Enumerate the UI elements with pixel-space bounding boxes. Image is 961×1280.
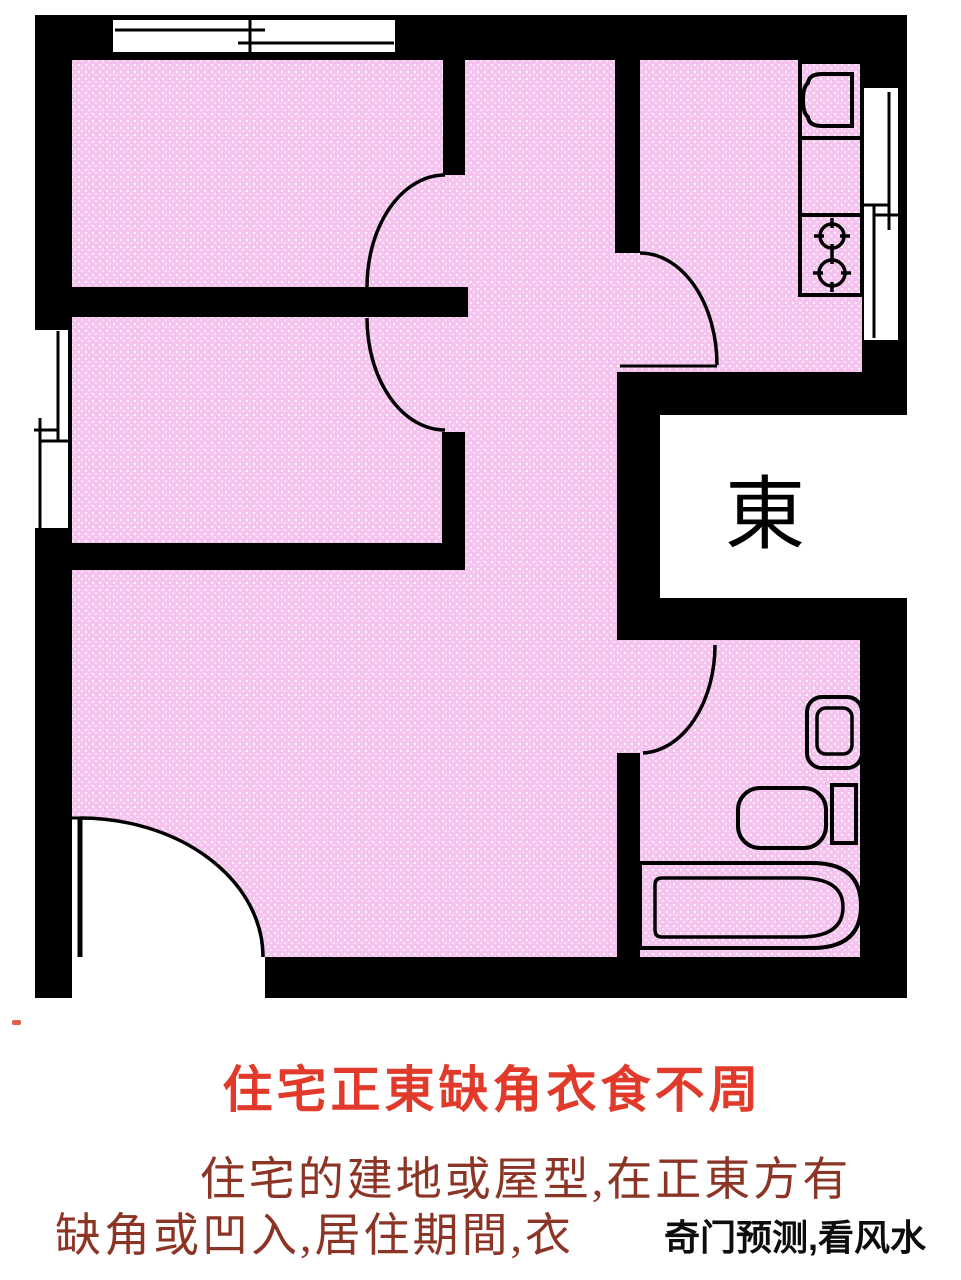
wall-bedroom2-south (60, 543, 463, 570)
red-speck-artifact (12, 1020, 21, 1025)
floor-plan-page: 東 (0, 0, 961, 1280)
wall-bedroom-divider (60, 287, 468, 317)
floor-bathroom (640, 640, 862, 957)
east-direction-label: 東 (725, 472, 805, 560)
window-icon-top (113, 20, 395, 52)
wall-corridor-stub-top (443, 57, 465, 175)
caption-title: 住宅正東缺角衣食不周 (12, 1050, 961, 1122)
floor-plan-diagram: 東 (0, 0, 961, 1010)
wall-kitchen-south (617, 372, 907, 415)
wall-right-lower (860, 598, 907, 998)
wall-bathroom-left (617, 753, 640, 958)
watermark-text: 奇门预测,看风水 (664, 1209, 926, 1261)
caption-line-3: 缺角或凹入,居住期間,衣 (55, 1199, 574, 1265)
floor-main-rooms (60, 57, 640, 957)
wall-kitchen-left (615, 57, 640, 253)
wall-bottom (265, 957, 907, 998)
wall-notch-south (617, 598, 907, 640)
window-icon-right (864, 88, 898, 340)
wall-notch-left (617, 415, 660, 598)
window-icon-left (34, 330, 68, 528)
